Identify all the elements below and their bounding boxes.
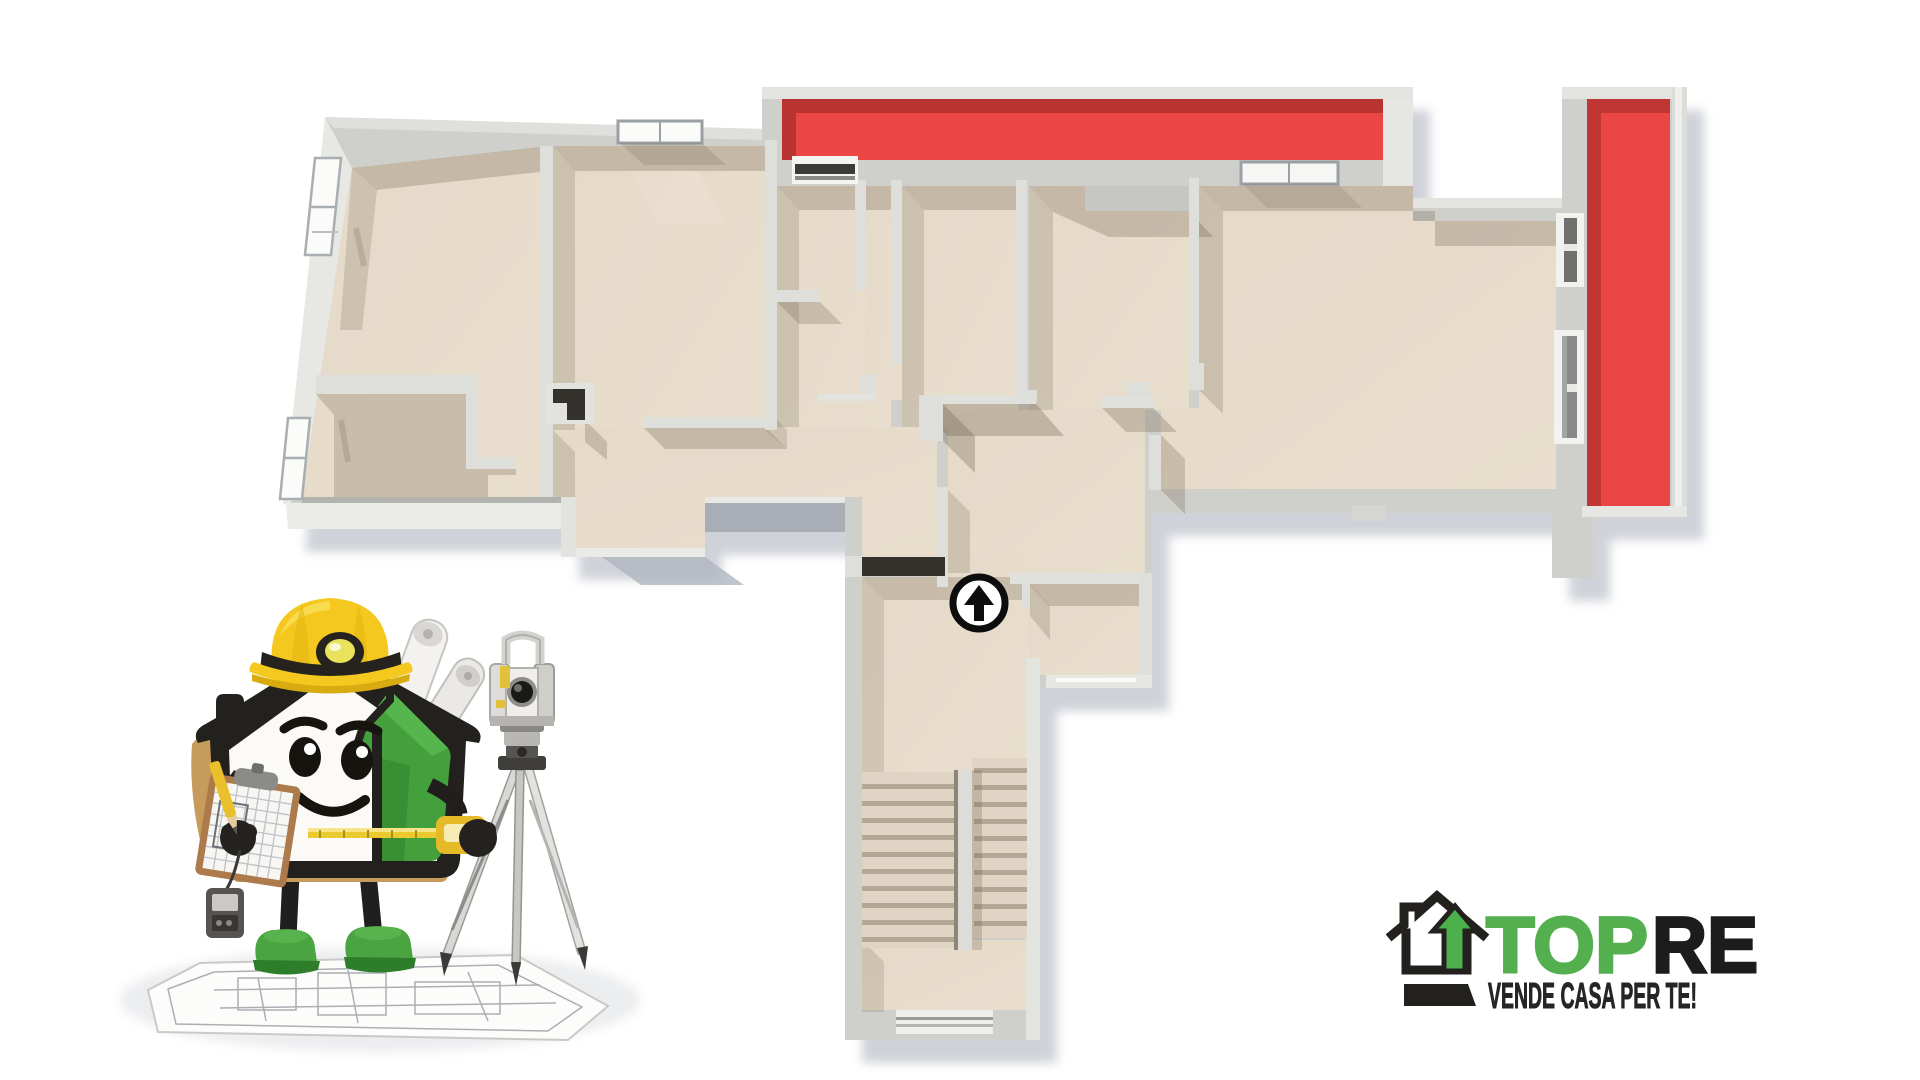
svg-text:VENDE CASA PER TE!: VENDE CASA PER TE! <box>1488 975 1697 1016</box>
